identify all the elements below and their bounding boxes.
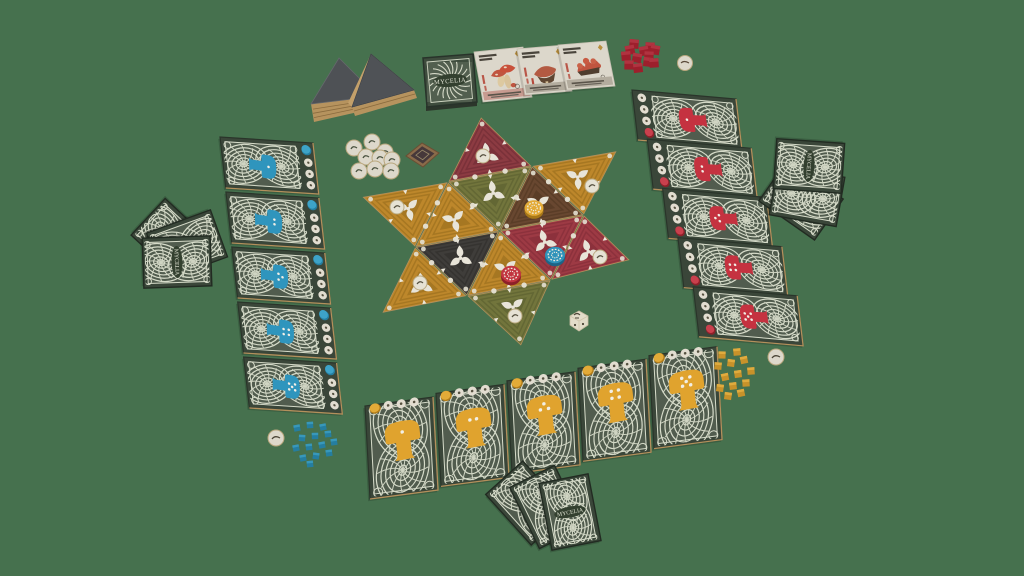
svg-text:MYCELIA: MYCELIA bbox=[173, 249, 180, 276]
